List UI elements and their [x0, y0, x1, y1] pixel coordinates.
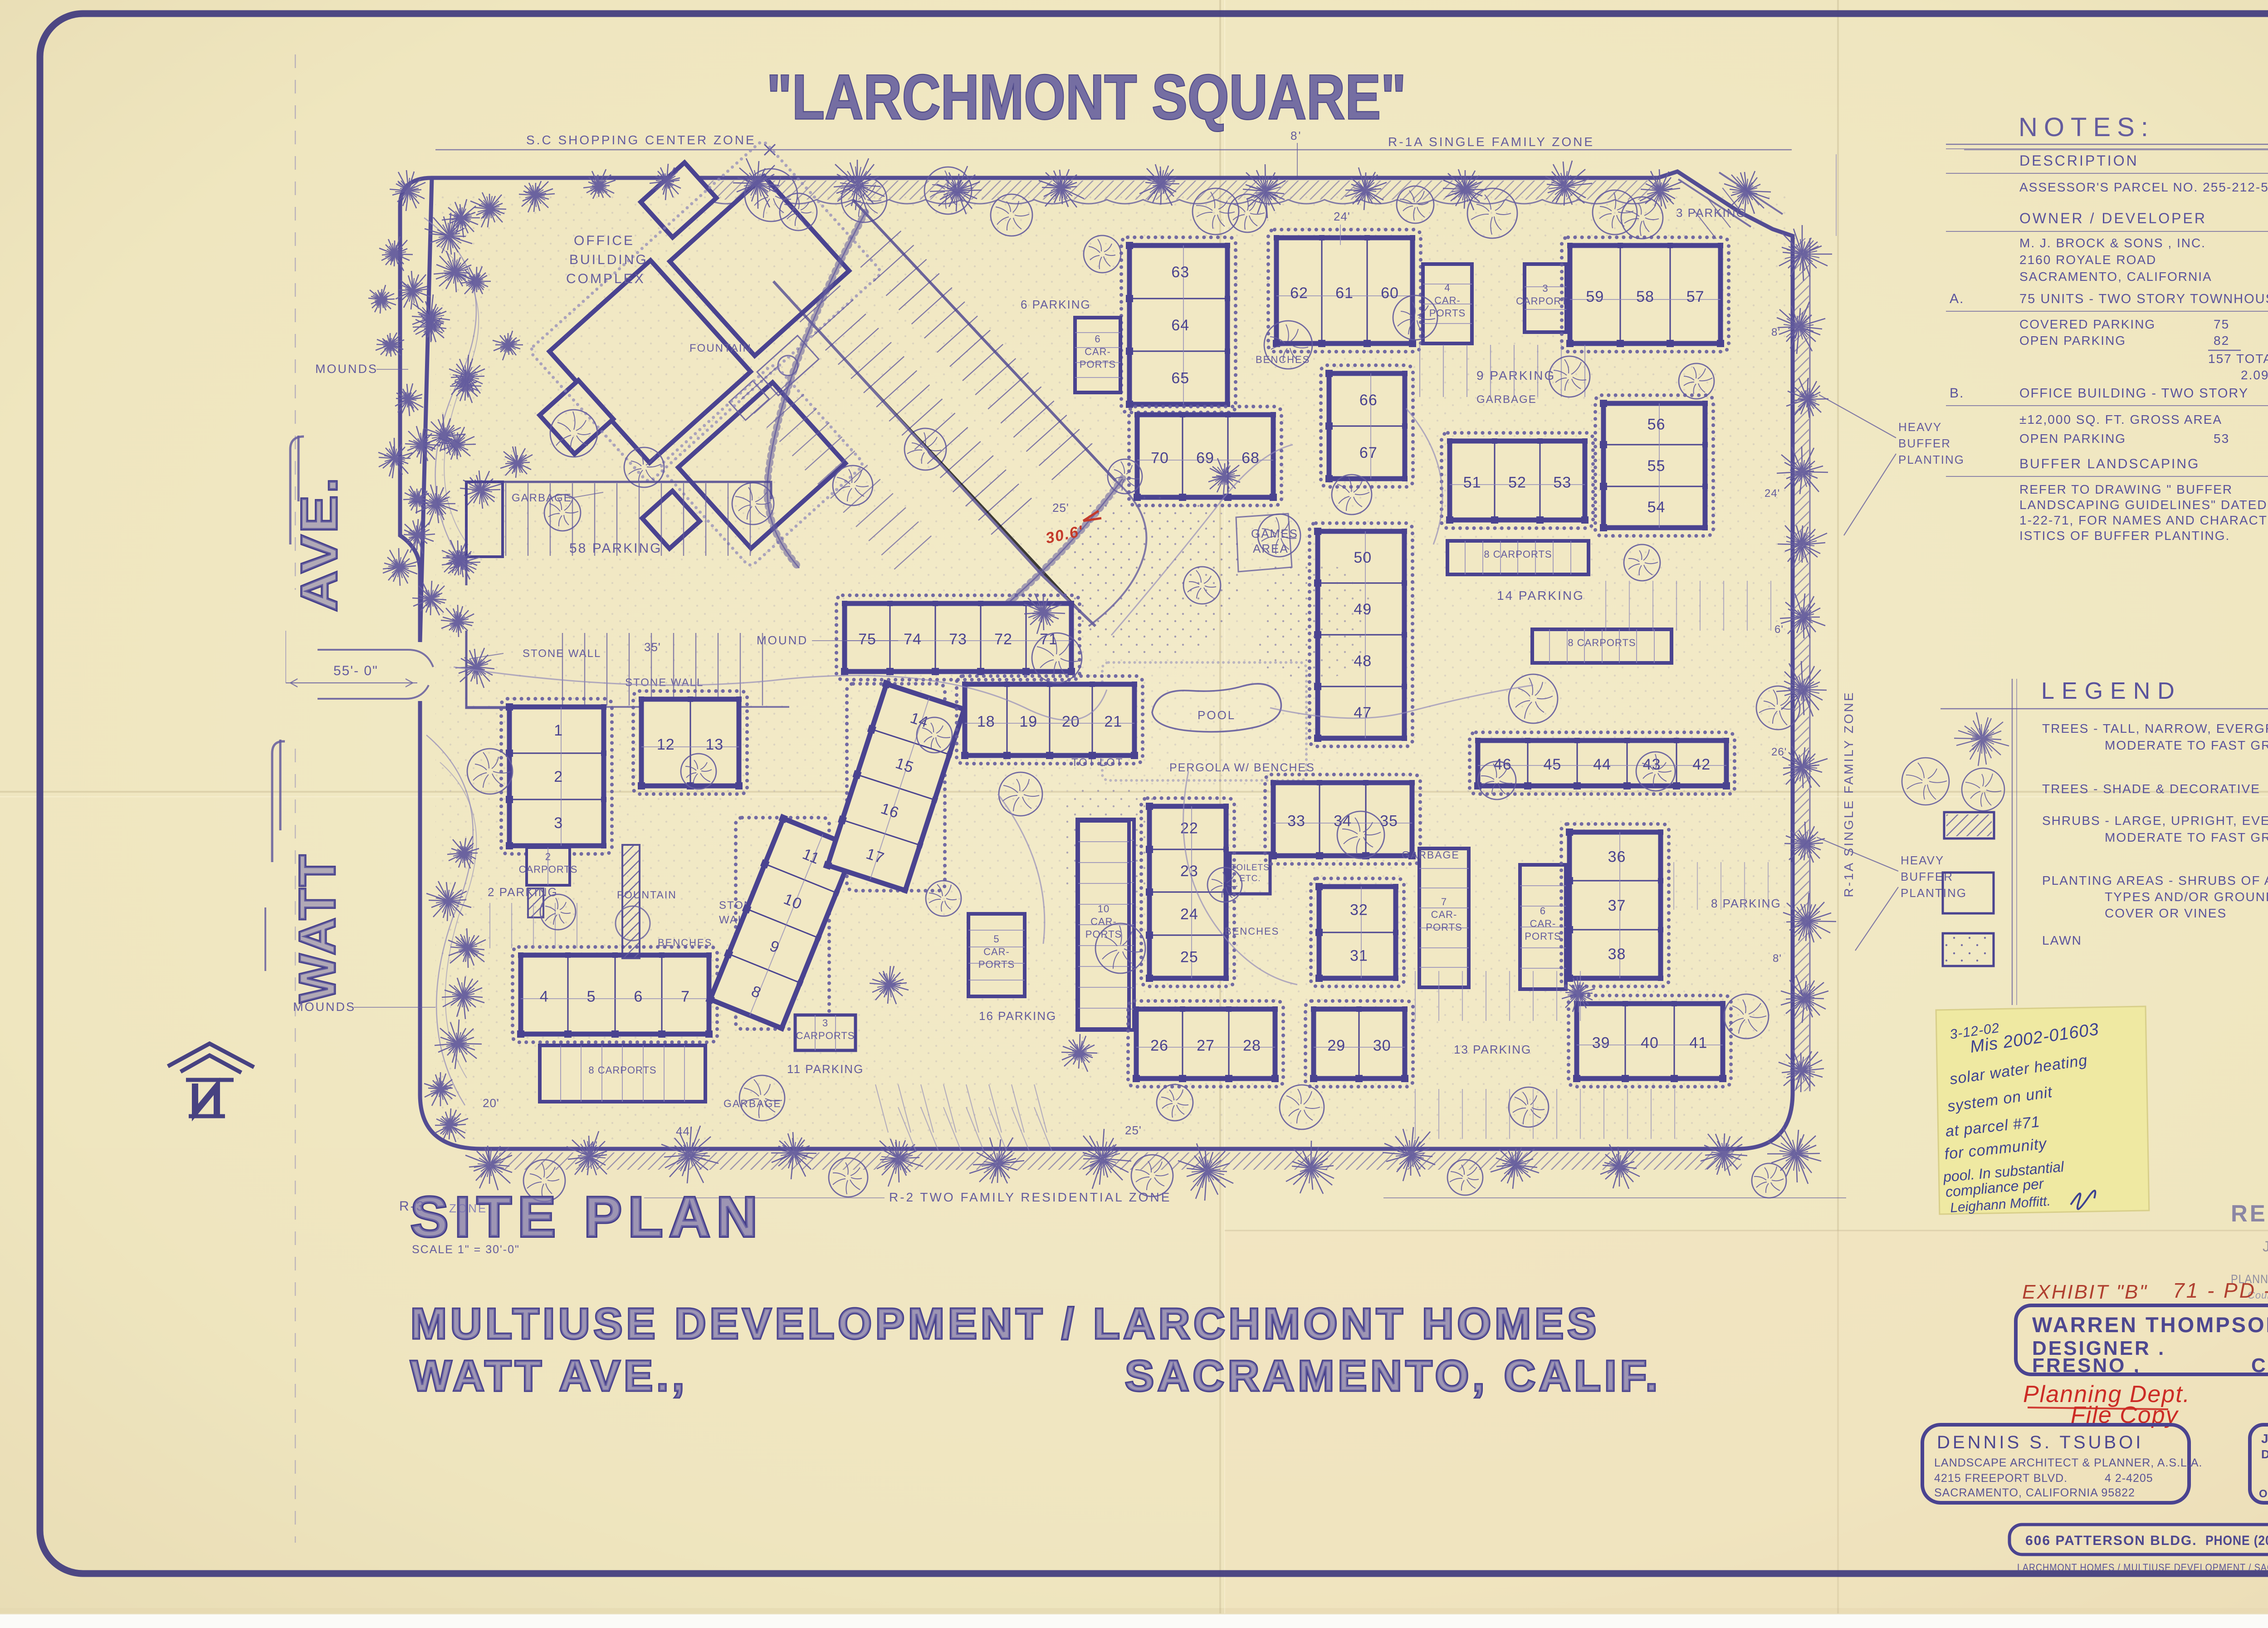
svg-text:69: 69	[1196, 450, 1214, 467]
svg-text:606 PATTERSON BLDG.: 606 PATTERSON BLDG.	[2025, 1533, 2197, 1548]
svg-text:PORTS: PORTS	[1080, 359, 1116, 370]
svg-text:BENCHES: BENCHES	[1256, 354, 1310, 365]
svg-text:OWNER / DEVELOPER: OWNER / DEVELOPER	[2019, 210, 2207, 226]
svg-text:OF: OF	[2259, 1488, 2268, 1500]
svg-text:60: 60	[1381, 284, 1399, 302]
svg-text:13 PARKING: 13 PARKING	[1454, 1043, 1531, 1056]
svg-text:SCALE 1" = 30'-0": SCALE 1" = 30'-0"	[412, 1243, 520, 1256]
svg-text:2 PARKING: 2 PARKING	[488, 885, 558, 899]
svg-text:45: 45	[1543, 756, 1561, 773]
svg-text:LAWN: LAWN	[2042, 933, 2082, 947]
svg-text:M. J. BROCK & SONS , INC.: M. J. BROCK & SONS , INC.	[2019, 236, 2206, 250]
svg-text:DENNIS S. TSUBOI: DENNIS S. TSUBOI	[1937, 1432, 2143, 1452]
svg-text:GARBAGE: GARBAGE	[1476, 393, 1537, 406]
svg-text:LANDSCAPE ARCHITECT & PLANNER,: LANDSCAPE ARCHITECT & PLANNER, A.S.L.A.	[1934, 1456, 2203, 1469]
svg-text:74: 74	[904, 631, 922, 648]
svg-text:DATE: DATE	[2261, 1447, 2268, 1461]
svg-text:TREES - SHADE & DECORATIVE: TREES - SHADE & DECORATIVE	[2042, 782, 2260, 796]
svg-text:51: 51	[1463, 474, 1481, 491]
svg-text:2.09 TO 1: 2.09 TO 1	[2241, 368, 2268, 382]
svg-text:24': 24'	[1334, 210, 1350, 223]
svg-text:JOB NO.: JOB NO.	[2261, 1432, 2268, 1446]
svg-text:41: 41	[1689, 1035, 1707, 1052]
svg-text:JUN 8 1971: JUN 8 1971	[2263, 1238, 2268, 1255]
svg-text:1-22-71, FOR NAMES AND CHA: 1-22-71, FOR NAMES AND CHARACTER-	[2019, 513, 2268, 527]
svg-text:26': 26'	[1771, 746, 1787, 758]
svg-text:75: 75	[858, 631, 876, 648]
svg-text:MOUND: MOUND	[757, 633, 808, 647]
svg-text:CAR-: CAR-	[1085, 346, 1111, 358]
svg-text:WARREN THOMPSON: WARREN THOMPSON	[2032, 1313, 2268, 1337]
svg-text:4: 4	[540, 988, 549, 1005]
svg-text:6: 6	[1540, 905, 1546, 917]
svg-text:4: 4	[1444, 282, 1450, 294]
svg-text:11 PARKING: 11 PARKING	[787, 1062, 864, 1076]
svg-text:54: 54	[1647, 499, 1666, 516]
svg-text:55: 55	[1647, 457, 1666, 475]
svg-text:2: 2	[554, 768, 563, 785]
svg-text:70: 70	[1151, 450, 1169, 467]
svg-text:67: 67	[1359, 444, 1378, 461]
svg-text:3: 3	[1542, 283, 1548, 294]
svg-text:40: 40	[1641, 1035, 1659, 1052]
svg-text:62: 62	[1290, 284, 1308, 302]
svg-text:MOUNDS: MOUNDS	[315, 362, 378, 376]
svg-text:MODERATE TO FAST GROWTH: MODERATE TO FAST GROWTH	[2105, 738, 2268, 752]
svg-text:53: 53	[2214, 432, 2229, 446]
svg-text:PORTS: PORTS	[1426, 922, 1462, 933]
svg-text:10: 10	[1098, 903, 1110, 915]
svg-text:6: 6	[634, 988, 643, 1005]
svg-text:28: 28	[1243, 1037, 1261, 1054]
svg-text:"LARCHMONT SQUARE": "LARCHMONT SQUARE"	[767, 61, 1406, 132]
svg-text:PHONE (209) 485-7404: PHONE (209) 485-7404	[2205, 1533, 2268, 1548]
svg-text:58: 58	[1636, 288, 1654, 305]
svg-text:PORTS: PORTS	[1429, 308, 1466, 319]
svg-text:64: 64	[1171, 317, 1189, 334]
svg-text:53: 53	[1553, 474, 1571, 491]
svg-text:S.C SHOPPING CENTER ZONE: S.C SHOPPING CENTER ZONE	[526, 133, 756, 147]
svg-text:12: 12	[657, 736, 675, 753]
svg-text:LARCHMONT HOMES / MULTIUSE: LARCHMONT HOMES / MULTIUSE DEVELOPMENT /…	[2017, 1562, 2268, 1573]
svg-text:3: 3	[554, 814, 563, 832]
svg-text:63: 63	[1171, 264, 1189, 281]
svg-text:R-1A SINGLE FAMILY ZONE: R-1A SINGLE FAMILY ZONE	[1388, 135, 1594, 149]
svg-text:CARPORTS: CARPORTS	[519, 864, 578, 875]
svg-text:8 CARPORTS: 8 CARPORTS	[1484, 549, 1552, 560]
svg-text:8': 8'	[1290, 129, 1302, 142]
svg-text:25': 25'	[1052, 501, 1069, 515]
svg-text:FRESNO ,: FRESNO ,	[2032, 1354, 2141, 1377]
svg-text:COVERED PARKING: COVERED PARKING	[2019, 317, 2156, 331]
svg-text:PLANTING: PLANTING	[1901, 886, 1967, 900]
svg-text:SITE PLAN: SITE PLAN	[411, 1186, 764, 1249]
svg-text:5: 5	[587, 988, 596, 1005]
svg-text:PLANTING: PLANTING	[1898, 453, 1965, 466]
svg-text:6': 6'	[1774, 623, 1784, 636]
svg-text:13: 13	[705, 736, 723, 753]
svg-text:6: 6	[1095, 333, 1100, 345]
svg-text:26: 26	[1150, 1037, 1168, 1054]
svg-text:COVER OR VINES: COVER OR VINES	[2105, 906, 2227, 920]
svg-text:37: 37	[1608, 897, 1626, 914]
svg-text:MULTIUSE DEVELOPMENT / LARCH: MULTIUSE DEVELOPMENT / LARCHMONT HOMES	[411, 1299, 1600, 1348]
svg-text:71 - PD - 3: 71 - PD - 3	[2173, 1279, 2268, 1302]
svg-text:ASSESSOR'S PARCEL NO. 255-2: ASSESSOR'S PARCEL NO. 255-212-5	[2019, 180, 2268, 194]
svg-text:4215 FREEPORT BLVD.: 4215 FREEPORT BLVD.	[1934, 1472, 2068, 1485]
svg-text:MOUNDS: MOUNDS	[293, 1000, 356, 1014]
svg-text:OPEN PARKING: OPEN PARKING	[2019, 333, 2126, 348]
svg-text:NOTES:: NOTES:	[2019, 113, 2155, 142]
svg-text:3: 3	[822, 1017, 828, 1029]
svg-text:ISTICS OF BUFFER PLANTING.: ISTICS OF BUFFER PLANTING.	[2019, 529, 2230, 543]
svg-text:DESCRIPTION: DESCRIPTION	[2019, 152, 2139, 169]
svg-text:32: 32	[1350, 901, 1368, 918]
svg-text:31: 31	[1350, 947, 1368, 964]
svg-text:21: 21	[1104, 713, 1122, 731]
svg-text:PORTS: PORTS	[978, 959, 1015, 970]
svg-text:73: 73	[949, 631, 967, 648]
svg-text:B.: B.	[1950, 386, 1964, 401]
svg-text:18: 18	[977, 713, 995, 731]
svg-text:CAR-: CAR-	[1530, 918, 1556, 929]
svg-text:WATT: WATT	[289, 853, 346, 1003]
svg-text:A.: A.	[1950, 291, 1964, 306]
svg-text:7: 7	[681, 988, 690, 1005]
svg-text:44: 44	[1593, 756, 1611, 773]
svg-text:CARPORTS: CARPORTS	[796, 1030, 855, 1041]
svg-text:8': 8'	[1773, 952, 1782, 965]
svg-text:HEAVY: HEAVY	[1901, 853, 1944, 867]
svg-text:BENCHES: BENCHES	[1225, 926, 1279, 937]
svg-text:57: 57	[1686, 288, 1705, 305]
svg-text:OPEN PARKING: OPEN PARKING	[2019, 432, 2126, 446]
svg-text:CAR-: CAR-	[1090, 916, 1117, 927]
svg-text:75 UNITS - TWO STORY TOWNH: 75 UNITS - TWO STORY TOWNHOUSE	[2019, 292, 2268, 306]
svg-text:BENCHES: BENCHES	[658, 937, 712, 948]
svg-text:ETC.: ETC.	[1239, 874, 1261, 883]
svg-text:27: 27	[1197, 1037, 1215, 1054]
svg-text:POOL: POOL	[1198, 708, 1236, 722]
svg-text:±12,000 SQ. FT. GROSS AREA: ±12,000 SQ. FT. GROSS AREA	[2019, 412, 2222, 427]
svg-text:4 2-4205: 4 2-4205	[2105, 1472, 2153, 1485]
svg-text:6 PARKING: 6 PARKING	[1021, 298, 1091, 311]
svg-text:PERGOLA W/ BENCHES: PERGOLA W/ BENCHES	[1169, 761, 1315, 774]
svg-text:8 PARKING: 8 PARKING	[1711, 897, 1781, 910]
svg-text:CARPORTS: CARPORTS	[1516, 295, 1575, 307]
svg-text:REFER TO DRAWING " BUFFER: REFER TO DRAWING " BUFFER	[2019, 482, 2233, 496]
svg-text:24: 24	[1180, 906, 1198, 923]
svg-text:SACRAMENTO, CALIFORNIA 95822: SACRAMENTO, CALIFORNIA 95822	[1934, 1486, 2135, 1499]
svg-text:2: 2	[545, 851, 551, 863]
svg-text:24': 24'	[1765, 487, 1780, 500]
svg-text:LEGEND: LEGEND	[2041, 678, 2182, 704]
svg-text:CAR-: CAR-	[983, 946, 1010, 957]
svg-text:9 PARKING: 9 PARKING	[1476, 368, 1555, 382]
svg-text:30: 30	[1373, 1037, 1391, 1054]
svg-text:SHRUBS - LARGE, UPRIGHT, EVERG: SHRUBS - LARGE, UPRIGHT, EVERGREEN,	[2042, 814, 2268, 828]
svg-text:R-2 TWO FAMILY RESIDENTI: R-2 TWO FAMILY RESIDENTIAL ZONE	[889, 1190, 1171, 1204]
svg-text:TOILETS: TOILETS	[1231, 863, 1270, 873]
svg-text:39: 39	[1592, 1035, 1610, 1052]
svg-text:25: 25	[1180, 949, 1198, 966]
svg-text:GARBAGE: GARBAGE	[1402, 849, 1460, 861]
svg-text:HEAVY: HEAVY	[1898, 420, 1942, 434]
svg-text:56: 56	[1647, 416, 1666, 433]
svg-text:AVE.: AVE.	[291, 476, 347, 612]
svg-text:5: 5	[993, 933, 999, 945]
svg-text:OFFICE BUILDING - TWO STORY: OFFICE BUILDING - TWO STORY	[2019, 386, 2248, 401]
svg-text:RECEIVED: RECEIVED	[2231, 1201, 2268, 1227]
svg-text:42: 42	[1692, 756, 1711, 773]
svg-text:R-1A SINGLE FAMILY ZONE: R-1A SINGLE FAMILY ZONE	[1842, 691, 1856, 897]
svg-text:20: 20	[1062, 713, 1080, 731]
svg-text:52: 52	[1508, 474, 1526, 491]
svg-text:29: 29	[1327, 1037, 1345, 1054]
svg-text:PORTS: PORTS	[1525, 931, 1561, 942]
svg-text:1: 1	[554, 722, 563, 739]
svg-text:25': 25'	[1125, 1123, 1142, 1137]
svg-text:66: 66	[1359, 392, 1378, 409]
svg-text:157 TOTAL OR: 157 TOTAL OR	[2208, 352, 2268, 366]
svg-text:SACRAMENTO, CALIF.: SACRAMENTO, CALIF.	[1125, 1352, 1661, 1400]
svg-text:59: 59	[1586, 288, 1604, 305]
svg-text:50: 50	[1354, 549, 1372, 566]
svg-text:8 CARPORTS: 8 CARPORTS	[1568, 637, 1636, 648]
svg-text:65: 65	[1171, 370, 1189, 387]
svg-text:FOUNTAIN: FOUNTAIN	[617, 889, 677, 901]
svg-text:61: 61	[1335, 284, 1354, 302]
svg-text:PLANTING AREAS - SHRUBS O: PLANTING AREAS - SHRUBS OF ALL	[2042, 873, 2268, 888]
svg-text:14 PARKING: 14 PARKING	[1497, 588, 1584, 603]
svg-text:72: 72	[994, 631, 1012, 648]
svg-text:82: 82	[2214, 333, 2229, 348]
svg-text:SACRAMENTO, CALIFORNIA: SACRAMENTO, CALIFORNIA	[2019, 270, 2212, 284]
svg-text:7: 7	[1441, 896, 1447, 907]
svg-text:LANDSCAPING GUIDELINES" DATE: LANDSCAPING GUIDELINES" DATED	[2019, 498, 2268, 512]
svg-text:8 CARPORTS: 8 CARPORTS	[588, 1064, 656, 1076]
svg-text:CAR-: CAR-	[1431, 909, 1457, 920]
svg-text:38: 38	[1608, 946, 1626, 963]
svg-text:CAR-: CAR-	[1434, 295, 1461, 306]
svg-text:19: 19	[1019, 713, 1037, 731]
svg-text:75: 75	[2214, 317, 2229, 331]
svg-text:EXHIBIT "B": EXHIBIT "B"	[2022, 1281, 2148, 1303]
svg-text:55'- 0": 55'- 0"	[333, 663, 378, 678]
svg-text:TYPES AND/OR GROUND: TYPES AND/OR GROUND	[2105, 890, 2268, 904]
svg-text:MODERATE TO FAST GROWTH.: MODERATE TO FAST GROWTH.	[2105, 830, 2268, 844]
svg-text:TREES - TALL, NARROW, EVERGREE: TREES - TALL, NARROW, EVERGREEN,	[2042, 721, 2268, 736]
svg-text:BUFFER LANDSCAPING: BUFFER LANDSCAPING	[2019, 456, 2200, 471]
svg-text:16 PARKING: 16 PARKING	[979, 1009, 1056, 1023]
svg-text:33: 33	[1287, 813, 1305, 830]
svg-text:2160 ROYALE ROAD: 2160 ROYALE ROAD	[2019, 253, 2156, 267]
svg-text:WATT AVE.,: WATT AVE.,	[411, 1352, 688, 1400]
svg-text:36: 36	[1608, 848, 1626, 866]
svg-text:BUFFER: BUFFER	[1898, 436, 1951, 450]
svg-text:CALIF.: CALIF.	[2251, 1354, 2268, 1377]
